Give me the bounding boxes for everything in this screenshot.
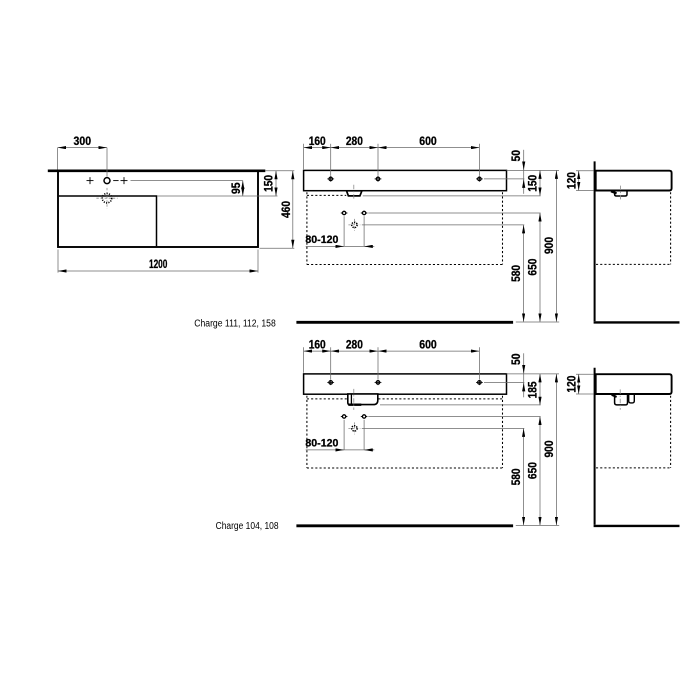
svg-text:80-120: 80-120	[305, 438, 338, 450]
svg-text:460: 460	[281, 201, 293, 218]
svg-text:185: 185	[528, 381, 540, 399]
svg-text:900: 900	[544, 441, 556, 458]
svg-text:650: 650	[528, 259, 540, 276]
svg-text:280: 280	[346, 136, 363, 148]
svg-text:300: 300	[74, 136, 92, 148]
svg-text:150: 150	[263, 175, 275, 192]
svg-text:600: 600	[419, 340, 437, 352]
svg-text:650: 650	[528, 462, 540, 479]
svg-text:50: 50	[511, 354, 523, 366]
svg-text:160: 160	[309, 340, 326, 352]
svg-text:600: 600	[419, 136, 437, 148]
svg-text:120: 120	[566, 376, 578, 393]
svg-text:1200: 1200	[149, 259, 168, 271]
svg-text:50: 50	[511, 150, 523, 162]
svg-text:120: 120	[566, 172, 578, 189]
svg-text:Charge 104, 108: Charge 104, 108	[216, 521, 279, 532]
svg-text:95: 95	[231, 182, 243, 194]
svg-text:580: 580	[511, 468, 523, 485]
svg-text:Charge 111, 112, 158: Charge 111, 112, 158	[194, 319, 276, 330]
svg-text:900: 900	[544, 237, 556, 254]
svg-text:280: 280	[346, 340, 363, 352]
svg-text:580: 580	[511, 265, 523, 282]
svg-text:160: 160	[309, 136, 326, 148]
svg-text:80-120: 80-120	[305, 234, 338, 246]
svg-text:150: 150	[528, 175, 540, 192]
